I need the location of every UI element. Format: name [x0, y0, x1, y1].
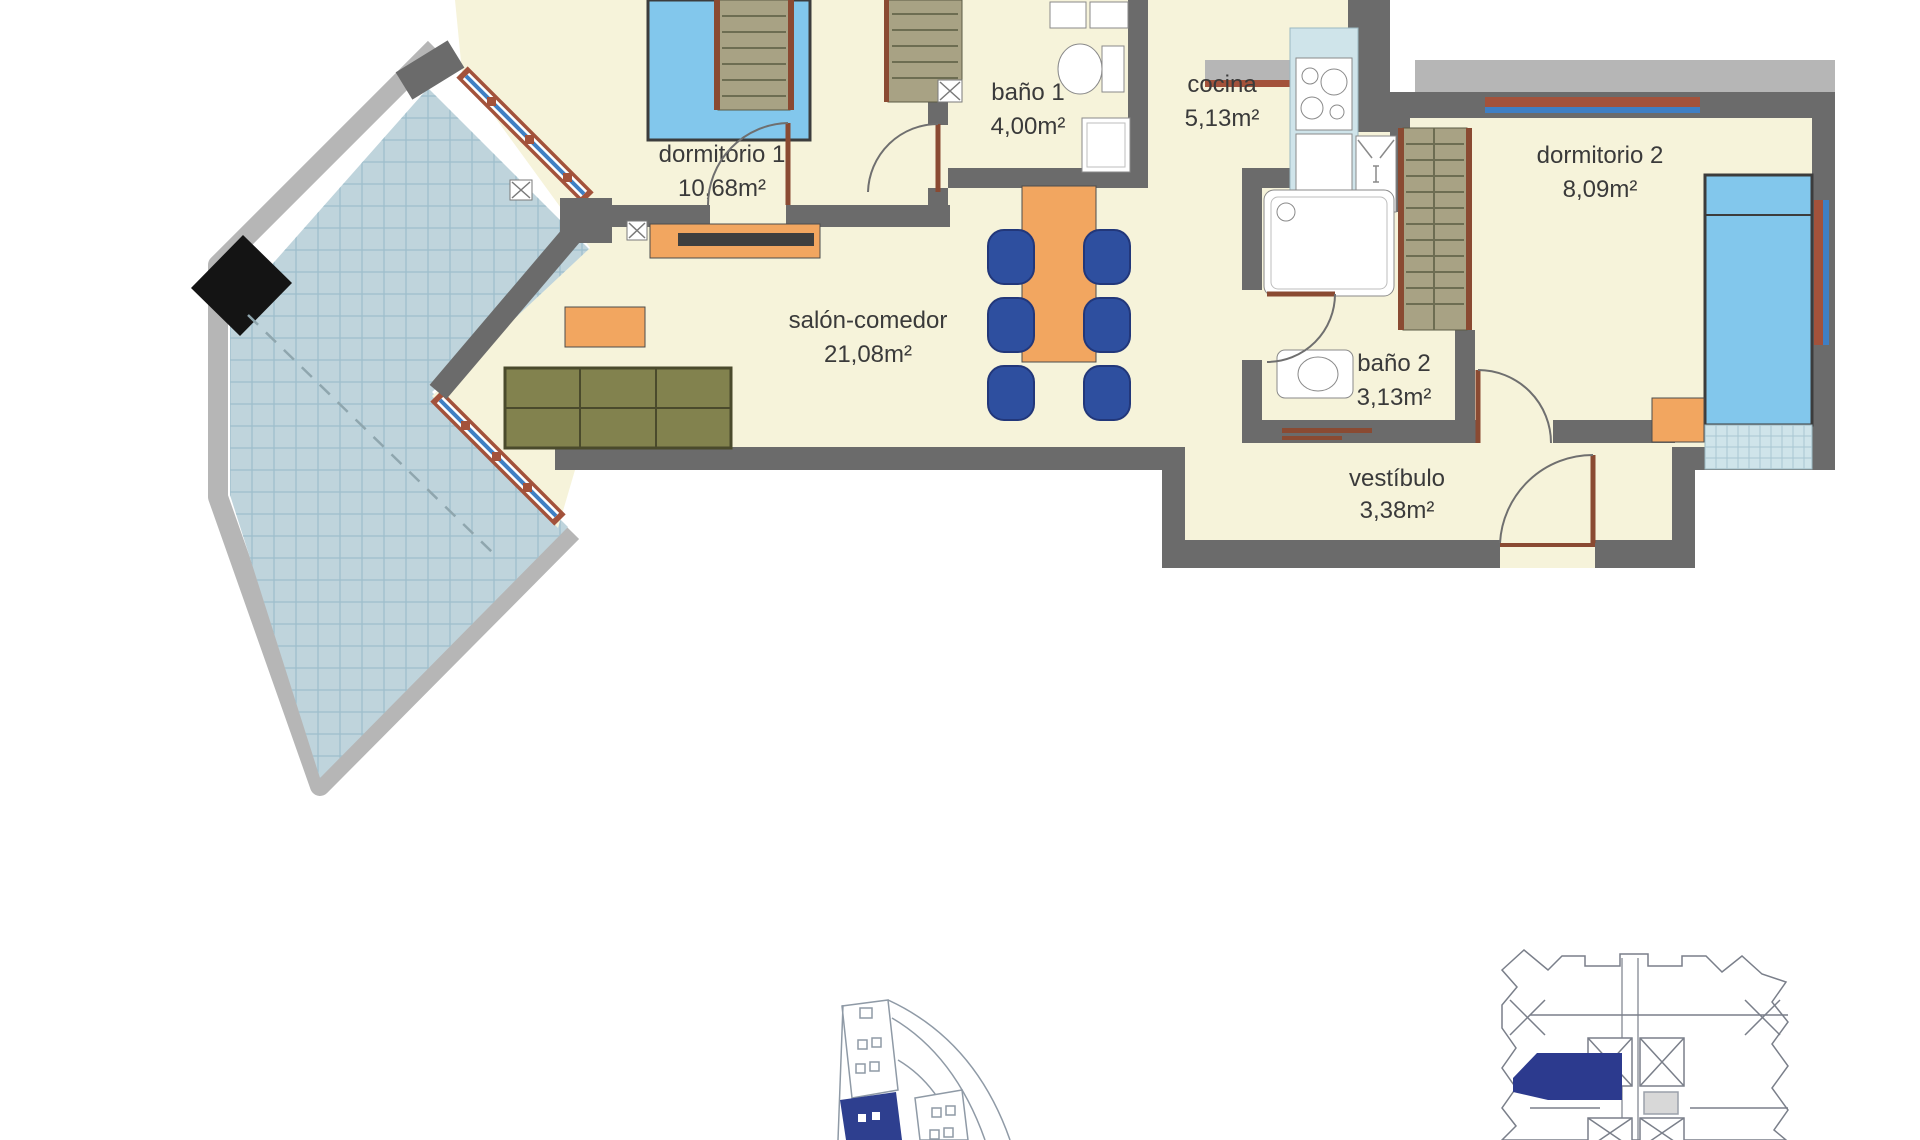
dormitorio-2-top-window: [1485, 97, 1700, 113]
wardrobe-1: [714, 0, 794, 110]
room-label-cocina: cocina: [1187, 71, 1257, 98]
room-label-bano-1: baño 1: [991, 79, 1064, 106]
exterior-wall-band: [1415, 60, 1835, 92]
room-label-bano-2: baño 2: [1357, 350, 1430, 377]
room-label-vestibulo: vestíbulo: [1349, 465, 1445, 492]
floor-plan-canvas: dormitorio 1 10,68m² baño 1 4,00m²: [0, 0, 1920, 1140]
chair: [1084, 366, 1130, 420]
dormitorio-2-side-window: [1814, 200, 1829, 345]
sofa: [505, 368, 731, 448]
room-area-bano-1: 4,00m²: [991, 113, 1066, 140]
key-plan-minimap: [1502, 950, 1788, 1140]
chair: [988, 298, 1034, 352]
room-area-vestibulo: 3,38m²: [1360, 497, 1435, 524]
cooktop: [1296, 58, 1352, 130]
site-plan-minimap: [838, 1000, 1010, 1140]
room-area-dormitorio-1: 10,68m²: [678, 175, 766, 202]
room-label-dormitorio-1: dormitorio 1: [659, 141, 786, 168]
chair: [988, 230, 1034, 284]
room-area-salon-comedor: 21,08m²: [824, 341, 912, 368]
washbasin-1: [1090, 2, 1128, 28]
room-area-bano-2: 3,13m²: [1357, 384, 1432, 411]
wardrobe-3: [1398, 128, 1472, 330]
chair: [988, 366, 1034, 420]
room-label-salon-comedor: salón-comedor: [789, 307, 948, 334]
room-label-dormitorio-2: dormitorio 2: [1537, 142, 1664, 169]
chair: [1084, 298, 1130, 352]
sideboard: [650, 224, 820, 258]
bed-2: [1705, 175, 1812, 425]
bed-2-foot-rug: [1705, 425, 1812, 469]
room-area-cocina: 5,13m²: [1185, 105, 1260, 132]
wardrobe-2: [884, 0, 962, 102]
toilet-1: [1058, 44, 1124, 94]
wall-junction-box-2: [627, 221, 647, 240]
floor-plan-page: dormitorio 1 10,68m² baño 1 4,00m²: [0, 0, 1920, 1140]
sink-counter: [1050, 2, 1086, 28]
site-highlighted-building: [840, 1092, 902, 1140]
room-area-dormitorio-2: 8,09m²: [1563, 176, 1638, 203]
coffee-table: [565, 307, 645, 347]
nightstand: [1652, 398, 1704, 442]
shower-tray: [1082, 118, 1130, 172]
bathtub: [1264, 190, 1394, 296]
chair: [1084, 230, 1130, 284]
wall-junction-box-1: [510, 180, 532, 200]
washbasin-2: [1277, 350, 1353, 398]
